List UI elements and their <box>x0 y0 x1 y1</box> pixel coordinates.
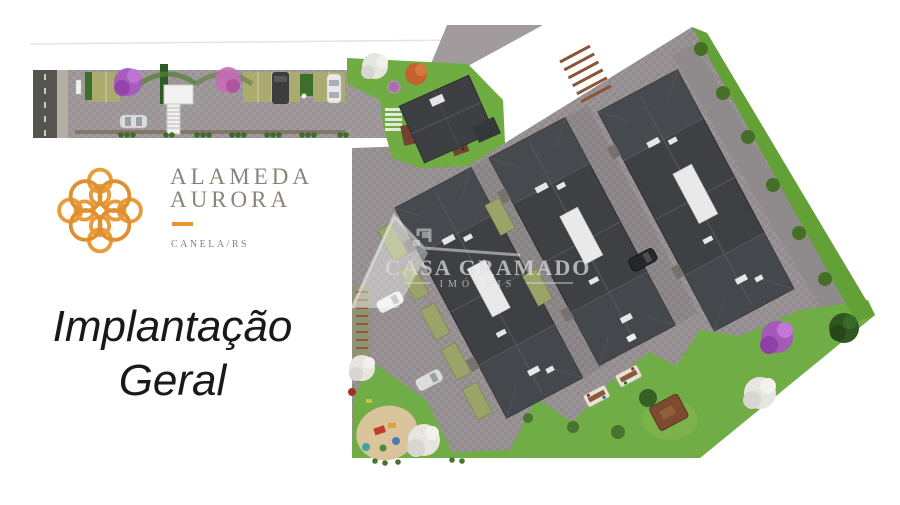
site-plan-page: CASA GRAMADO IMÓVEIS ALAMEDA AURORA CA <box>0 0 900 505</box>
play-equipment <box>392 437 400 445</box>
branding-panel: ALAMEDA AURORA CANELA/RS Implantação Ger… <box>0 0 330 505</box>
project-location: CANELA/RS <box>171 239 249 250</box>
bush-icon <box>741 130 755 144</box>
bench <box>366 399 372 403</box>
north-access-pavement <box>430 25 543 66</box>
tree-icon <box>639 389 657 407</box>
orange-tree-icon <box>405 63 427 85</box>
play-equipment <box>380 445 387 452</box>
bush-icon <box>818 272 832 286</box>
watermark-name: CASA GRAMADO <box>385 255 592 280</box>
project-name-line2: AURORA <box>170 188 313 211</box>
white-tree-icon <box>349 355 375 381</box>
project-name: ALAMEDA AURORA <box>170 165 313 212</box>
bush-icon <box>766 178 780 192</box>
play-equipment <box>362 443 370 451</box>
dark-tree-icon <box>829 313 859 343</box>
plan-caption-line2: Geral <box>0 354 345 408</box>
bush-icon <box>716 86 730 100</box>
bush-icon <box>792 226 806 240</box>
red-shrub-icon <box>348 388 356 396</box>
watermark-subtitle: IMÓVEIS <box>440 278 517 290</box>
round-shrub-icon <box>388 81 400 93</box>
brand-divider <box>172 222 193 226</box>
plan-caption: Implantação Geral <box>0 300 345 407</box>
play-equipment <box>388 423 396 428</box>
project-name-line1: ALAMEDA <box>170 165 313 188</box>
plan-caption-line1: Implantação <box>0 300 345 354</box>
bush-icon <box>694 42 708 56</box>
white-tree-icon <box>361 53 388 79</box>
knot-rosette-icon <box>50 158 150 263</box>
